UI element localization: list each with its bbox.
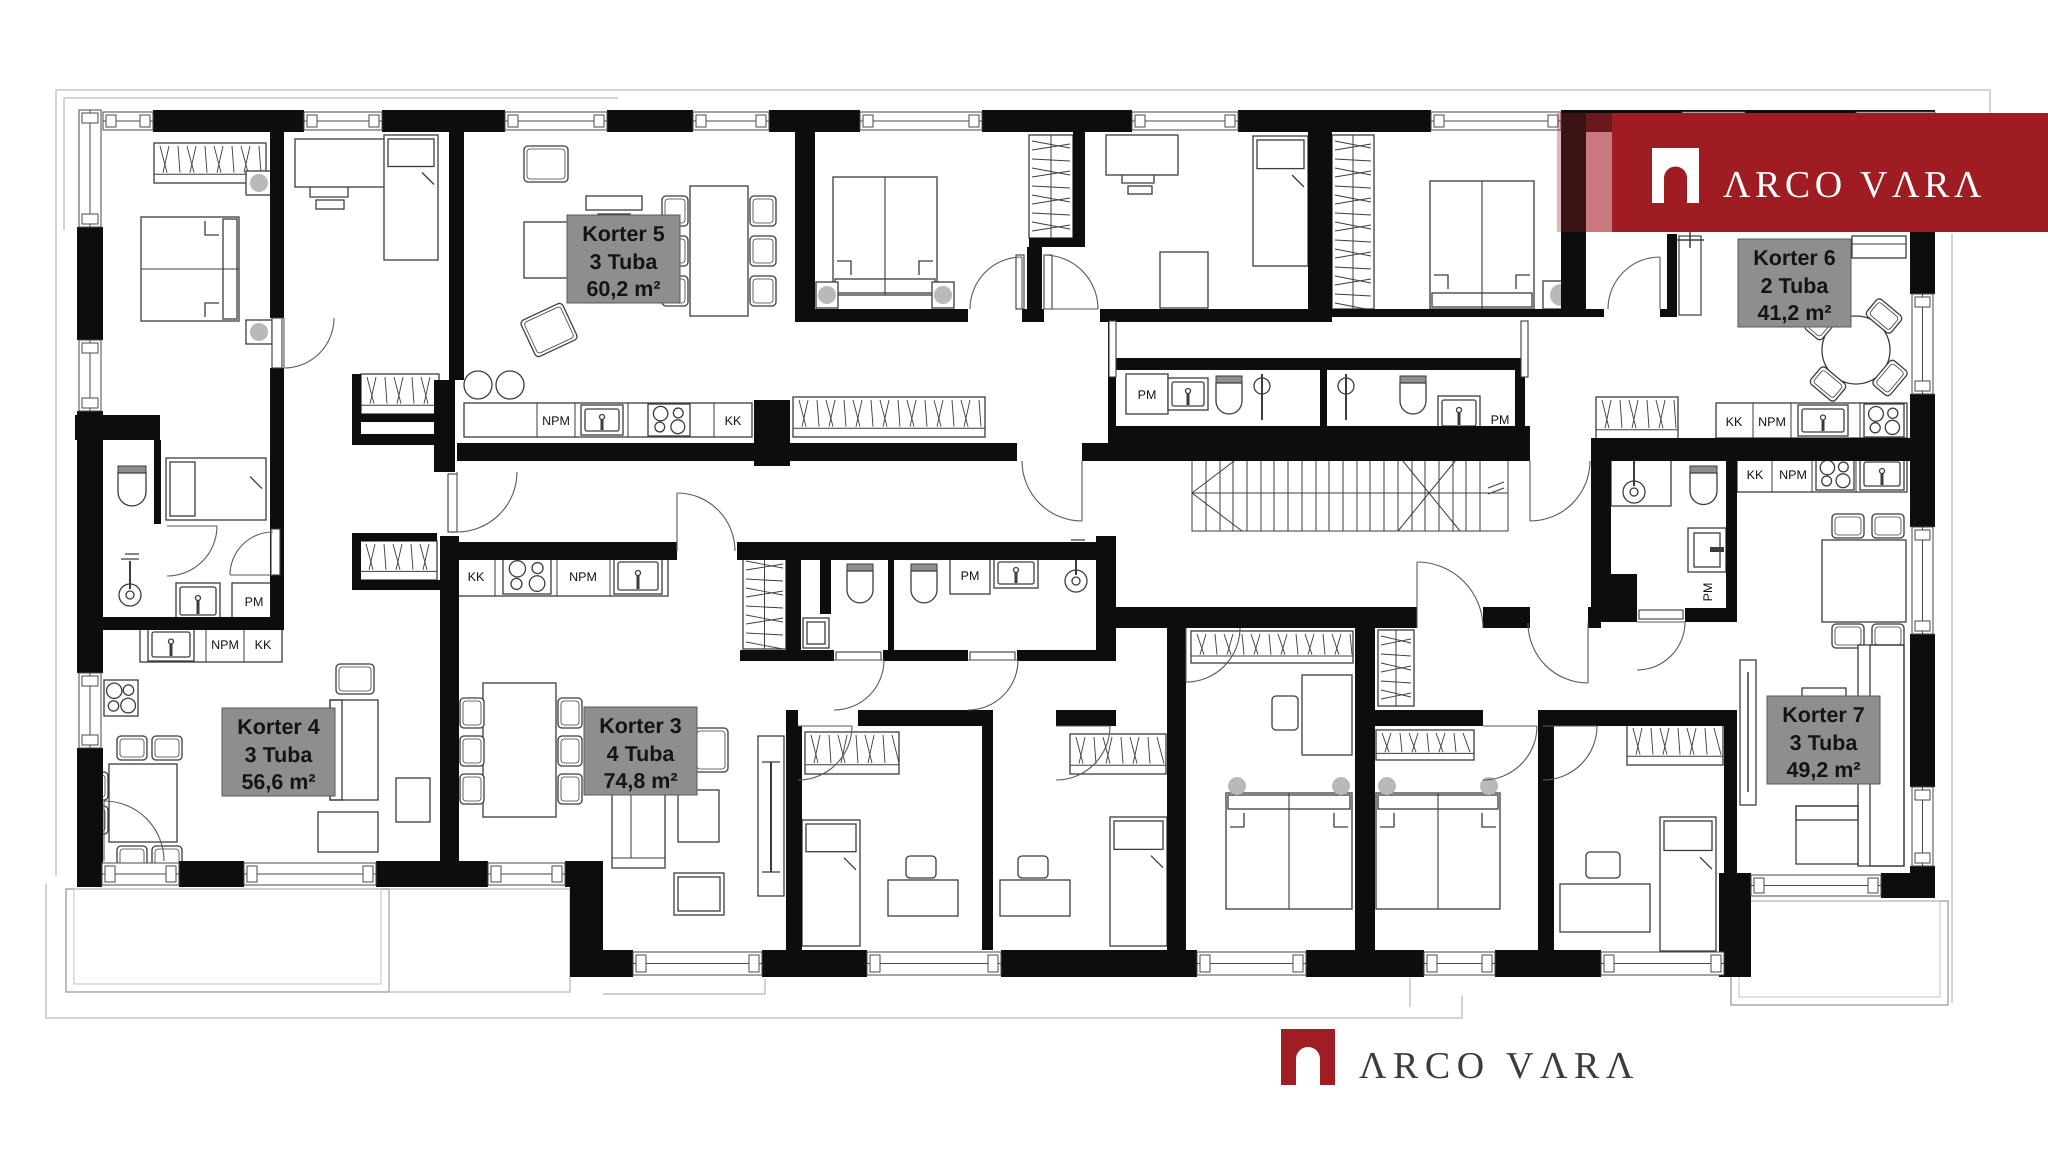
svg-text:KK: KK xyxy=(255,638,272,652)
svg-text:Korter 5: Korter 5 xyxy=(582,222,664,246)
svg-text:PM: PM xyxy=(245,595,264,609)
svg-text:Korter 6: Korter 6 xyxy=(1753,246,1835,270)
svg-text:4 Tuba: 4 Tuba xyxy=(607,742,676,766)
svg-text:PM: PM xyxy=(1701,583,1715,602)
svg-text:NPM: NPM xyxy=(569,570,597,584)
svg-text:49,2 m²: 49,2 m² xyxy=(1786,758,1860,782)
svg-text:3 Tuba: 3 Tuba xyxy=(1790,731,1859,755)
svg-text:60,2 m²: 60,2 m² xyxy=(586,277,660,301)
svg-text:Korter 7: Korter 7 xyxy=(1782,703,1864,727)
svg-text:KK: KK xyxy=(468,570,485,584)
svg-text:KK: KK xyxy=(1747,468,1764,482)
svg-text:PM: PM xyxy=(1491,413,1510,427)
svg-text:NPM: NPM xyxy=(1779,468,1807,482)
svg-text:NPM: NPM xyxy=(211,638,239,652)
svg-text:ΛRCO VΛRΛ: ΛRCO VΛRΛ xyxy=(1723,164,1986,206)
svg-text:PM: PM xyxy=(1138,388,1157,402)
svg-text:NPM: NPM xyxy=(542,414,570,428)
svg-text:41,2 m²: 41,2 m² xyxy=(1757,301,1831,325)
svg-text:3 Tuba: 3 Tuba xyxy=(245,743,314,767)
svg-text:ΛRCO VΛRΛ: ΛRCO VΛRΛ xyxy=(1359,1045,1640,1087)
svg-text:2 Tuba: 2 Tuba xyxy=(1761,274,1830,298)
svg-text:KK: KK xyxy=(1726,415,1743,429)
svg-text:56,6 m²: 56,6 m² xyxy=(241,770,315,794)
svg-text:3 Tuba: 3 Tuba xyxy=(590,250,659,274)
svg-text:Korter 4: Korter 4 xyxy=(237,715,319,739)
svg-text:KK: KK xyxy=(725,414,742,428)
svg-text:PM: PM xyxy=(961,569,980,583)
svg-text:Korter 3: Korter 3 xyxy=(599,714,681,738)
svg-text:74,8 m²: 74,8 m² xyxy=(603,769,677,793)
svg-text:NPM: NPM xyxy=(1758,415,1786,429)
